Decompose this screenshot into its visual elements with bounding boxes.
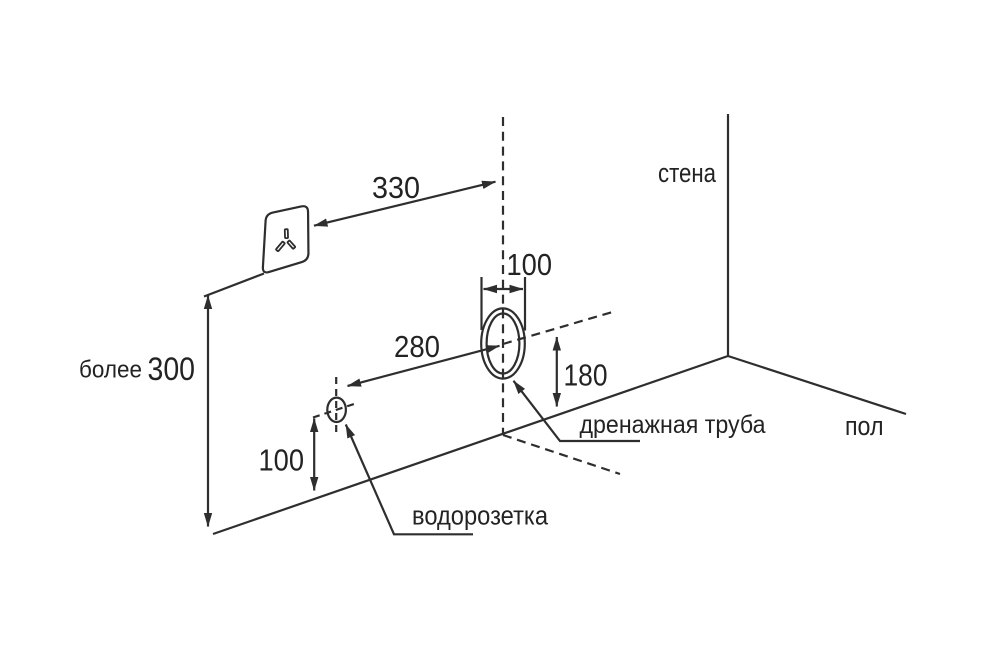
svg-text:пол: пол xyxy=(845,411,884,441)
svg-text:более: более xyxy=(79,357,142,384)
svg-text:дренажная труба: дренажная труба xyxy=(580,411,766,439)
svg-text:водорозетка: водорозетка xyxy=(412,503,549,531)
svg-text:300: 300 xyxy=(148,351,196,387)
svg-text:180: 180 xyxy=(564,359,608,393)
svg-text:100: 100 xyxy=(507,248,553,282)
svg-text:330: 330 xyxy=(372,170,420,205)
svg-text:100: 100 xyxy=(259,444,305,478)
svg-text:стена: стена xyxy=(658,158,716,188)
svg-text:280: 280 xyxy=(394,330,440,364)
